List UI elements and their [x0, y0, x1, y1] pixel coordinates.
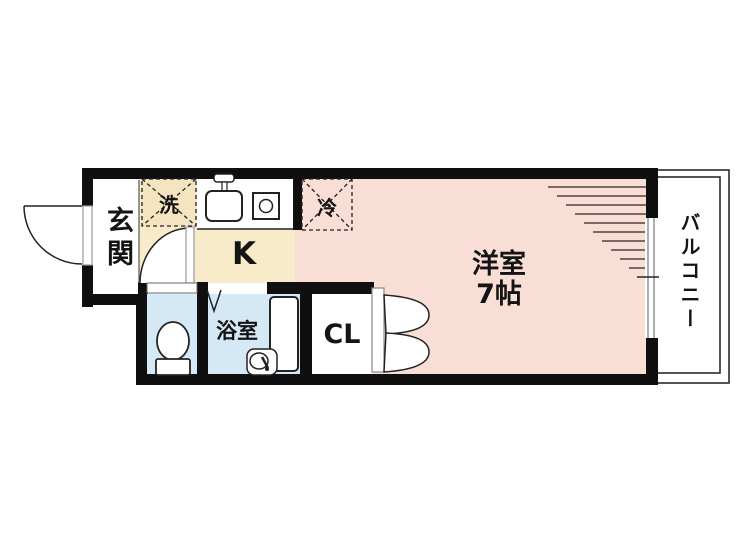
western-room-label: 洋室 7帖	[447, 250, 551, 310]
toilet-door-leaf	[147, 283, 197, 293]
entrance-door-leaf	[83, 206, 92, 265]
wall-right-upper	[646, 168, 658, 218]
wall-right-lower	[646, 338, 658, 385]
closet-label: CL	[313, 319, 371, 350]
western-room-name: 洋室	[447, 250, 551, 280]
sink-icon	[206, 191, 242, 221]
washroom-door-leaf	[186, 227, 194, 283]
toilet-icon	[156, 322, 190, 375]
washer-label: 洗	[142, 189, 196, 218]
sink-faucet-icon	[214, 174, 234, 182]
wall-closet-top	[312, 282, 374, 294]
entrance-door	[24, 206, 93, 265]
wall-bottom	[136, 374, 658, 385]
wall-bath-closet-divider	[300, 282, 312, 374]
fridge-label: 冷	[302, 192, 352, 221]
closet-door-strip	[372, 288, 384, 372]
stove-burner-icon	[260, 200, 273, 213]
wall-left-upper	[82, 168, 93, 206]
wall-step-left	[136, 294, 147, 385]
faucet-icon	[247, 349, 277, 375]
entrance-door-swing-arc	[24, 206, 82, 264]
bathroom-label: 浴室	[206, 315, 268, 345]
balcony-label: バルコニー	[675, 212, 704, 332]
kitchen-counter	[197, 174, 293, 229]
floorplan-canvas: 玄関 洗 冷 K 洋室 7帖 浴室 CL バルコニー	[0, 0, 750, 550]
floorplan-drawing	[0, 0, 750, 550]
wall-top	[82, 168, 658, 179]
kitchen-label: K	[218, 236, 270, 272]
genkan-label: 玄関	[98, 206, 137, 272]
western-room-size: 7帖	[447, 280, 551, 310]
